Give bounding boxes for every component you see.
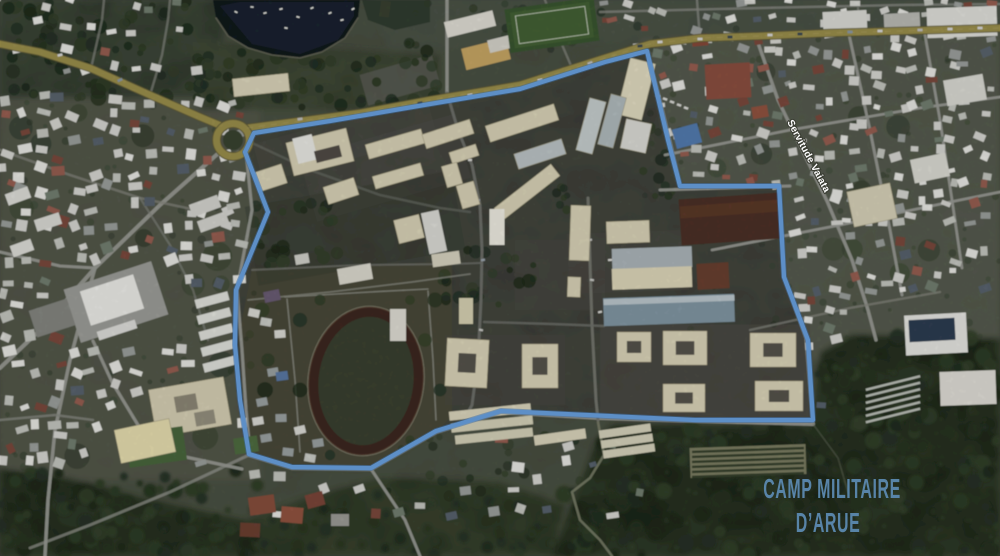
svg-text:D’ARUE: D’ARUE bbox=[796, 506, 861, 538]
svg-text:CAMP MILITAIRE: CAMP MILITAIRE bbox=[763, 472, 901, 504]
